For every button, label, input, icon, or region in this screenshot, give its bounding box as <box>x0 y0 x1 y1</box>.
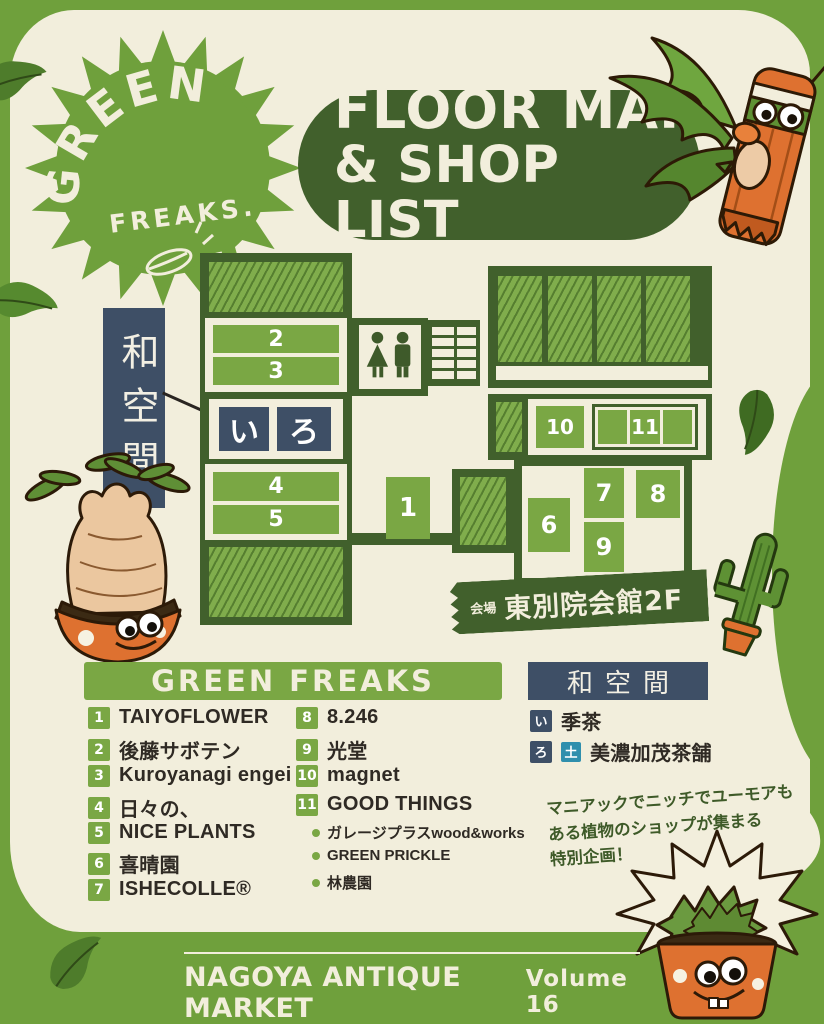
booth-number-badge: 5 <box>88 822 110 844</box>
map-hatched-panel <box>597 276 641 362</box>
list-item: 11 GOOD THINGS <box>296 793 473 816</box>
bullet-icon <box>312 852 320 860</box>
map-booth-1: 1 <box>386 477 430 539</box>
market-name: NAGOYA ANTIQUE MARKET <box>184 962 512 1024</box>
booth-number-badge: 9 <box>296 739 318 761</box>
map-booth-5: 5 <box>213 505 339 534</box>
booth-number-badge: 7 <box>88 879 110 901</box>
booth-number-badge: 6 <box>88 853 110 875</box>
sub-shop-item: GREEN PRICKLE <box>312 847 450 864</box>
tatami-badge: ろ <box>530 741 552 763</box>
venue-name: 東別院会館2F <box>503 577 684 625</box>
leaf-icon <box>715 384 789 457</box>
map-hatched-panel <box>498 276 542 362</box>
list-item: 3 Kuroyanagi engei <box>88 764 292 787</box>
list-item: 1 TAIYOFLOWER <box>88 706 269 729</box>
map-booth-11-cell <box>663 410 692 444</box>
pachypodium-mascot-illustration <box>16 442 216 662</box>
map-hatched-panel <box>646 276 690 362</box>
list-item: 9 光堂 <box>296 735 368 764</box>
booth-number-badge: 8 <box>296 707 318 729</box>
cactus-illustration <box>700 520 800 670</box>
list-item: 6 喜晴園 <box>88 849 180 878</box>
fern-leaf-icon <box>646 148 736 200</box>
map-booth-11: 11 <box>630 410 659 444</box>
wa-list-item: ろ 土 美濃加茂茶舗 <box>530 737 712 766</box>
saturday-only-badge: 土 <box>561 742 581 762</box>
green-freaks-list-header: GREEN FREAKS <box>84 662 502 700</box>
booth-number-badge: 1 <box>88 707 110 729</box>
succulent-mascot-illustration <box>612 826 822 1024</box>
map-booth-9: 9 <box>584 522 624 572</box>
map-booth-8: 8 <box>636 470 680 518</box>
leaf-icon <box>44 934 110 991</box>
restroom-icons <box>359 327 421 387</box>
booth-number-badge: 4 <box>88 797 110 819</box>
map-booth-10: 10 <box>536 406 584 448</box>
venue-label: 会場 <box>470 597 497 617</box>
bullet-icon <box>312 879 320 887</box>
volume-number: Volume 16 <box>526 966 640 1018</box>
log-body <box>701 40 824 251</box>
log-mascot-illustration <box>594 18 824 268</box>
tatami-badge: い <box>530 710 552 732</box>
booth-number-badge: 3 <box>88 765 110 787</box>
map-booth-4: 4 <box>213 472 339 501</box>
caudex-trunk <box>68 484 166 614</box>
map-hatched-area <box>460 477 506 545</box>
map-hatched-area <box>209 262 343 312</box>
list-item: 2 後藤サボテン <box>88 735 241 764</box>
wa-space-list-header: 和空間 <box>528 662 708 700</box>
map-hatched-area <box>496 402 522 452</box>
sub-shop-item: ガレージプラスwood&works <box>312 822 525 843</box>
footer-event-title: NAGOYA ANTIQUE MARKET Volume 16 <box>184 952 640 1024</box>
map-tatami-ro: ろ <box>277 407 331 451</box>
map-booth-3: 3 <box>213 357 339 385</box>
map-hatched-area <box>209 547 343 617</box>
map-room-panel <box>496 366 708 380</box>
map-booth-2: 2 <box>213 325 339 353</box>
wa-list-item: い 季茶 <box>530 706 602 735</box>
map-booth-11-block: 11 <box>592 404 698 450</box>
woman-icon <box>372 332 384 344</box>
booth-number-badge: 11 <box>296 794 318 816</box>
map-tatami-i: い <box>219 407 269 451</box>
booth-number-badge: 2 <box>88 739 110 761</box>
map-booth-11-cell <box>598 410 627 444</box>
man-icon <box>397 332 409 344</box>
sub-shop-item: 林農園 <box>312 872 372 893</box>
map-hatched-panel <box>548 276 592 362</box>
map-booth-7: 7 <box>584 468 624 518</box>
list-item: 4 日々の、 <box>88 793 200 822</box>
restroom <box>352 318 428 396</box>
list-item: 10 magnet <box>296 764 400 787</box>
list-item: 5 NICE PLANTS <box>88 821 256 844</box>
event-poster: GREEN FREAKS. FLOOR MAP & SHOP LIST <box>0 0 824 1024</box>
booth-number-badge: 10 <box>296 765 318 787</box>
stairs <box>428 320 480 386</box>
bullet-icon <box>312 829 320 837</box>
map-booth-6: 6 <box>528 498 570 552</box>
list-item: 7 ISHECOLLE® <box>88 878 251 901</box>
list-item: 8 8.246 <box>296 706 379 729</box>
